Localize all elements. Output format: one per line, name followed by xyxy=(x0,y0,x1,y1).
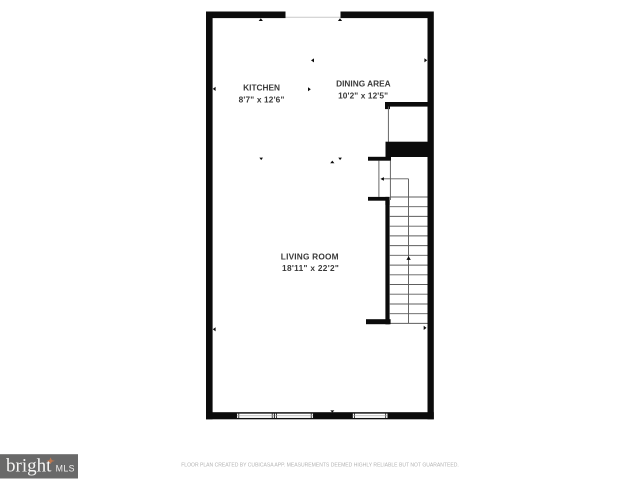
svg-text:KITCHEN: KITCHEN xyxy=(243,83,280,93)
svg-text:10'2" x 12'5": 10'2" x 12'5" xyxy=(338,90,388,100)
svg-text:FLOOR PLAN CREATED BY CUBICASA: FLOOR PLAN CREATED BY CUBICASA APP. MEAS… xyxy=(181,463,459,469)
svg-text:18'11" x 22'2": 18'11" x 22'2" xyxy=(282,263,339,273)
svg-text:bright: bright xyxy=(6,456,52,477)
svg-text:LIVING ROOM: LIVING ROOM xyxy=(281,251,339,261)
svg-text:MLS: MLS xyxy=(56,463,75,473)
svg-text:DINING AREA: DINING AREA xyxy=(336,78,391,88)
svg-text:8'7" x 12'6": 8'7" x 12'6" xyxy=(239,94,285,104)
